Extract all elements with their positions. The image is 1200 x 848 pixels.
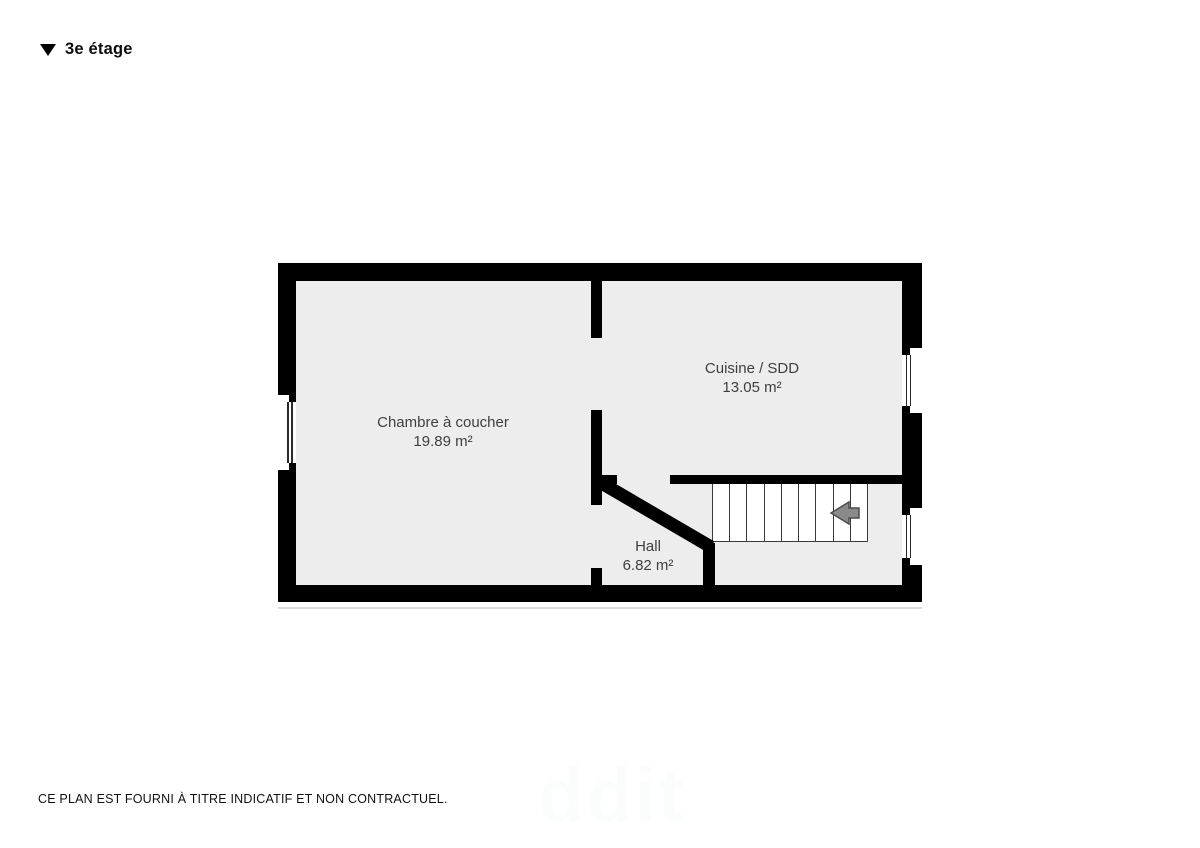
window-left-wall (278, 395, 296, 470)
wall-outer-top (278, 263, 922, 281)
wall-divider-upper (591, 281, 602, 338)
room-area: 13.05 m² (662, 378, 842, 397)
stair-tread (713, 484, 729, 541)
wall-outer-bottom (278, 585, 922, 602)
plan-edge-shadow (278, 607, 922, 609)
window-pane-line (906, 515, 908, 558)
stair-tread (764, 484, 781, 541)
room-label-hall: Hall 6.82 m² (588, 537, 708, 575)
window-pane-line (910, 515, 912, 558)
room-label-chambre: Chambre à coucher 19.89 m² (353, 413, 533, 451)
window-pane-line (287, 402, 289, 463)
stair-tread (815, 484, 832, 541)
room-area: 6.82 m² (588, 556, 708, 575)
window-frame-cap (902, 558, 910, 565)
window-pane-line (906, 355, 908, 406)
room-name: Cuisine / SDD (662, 359, 842, 378)
floor-title: 3e étage (65, 40, 133, 59)
window-pane-line (291, 402, 293, 463)
wall-stub (591, 475, 617, 484)
floorplan-canvas: Chambre à coucher 19.89 m² Cuisine / SDD… (278, 263, 922, 602)
staircase (712, 484, 868, 542)
room-name: Chambre à coucher (353, 413, 533, 432)
stair-tread (781, 484, 798, 541)
triangle-down-icon (40, 44, 56, 56)
disclaimer-text: CE PLAN EST FOURNI À TITRE INDICATIF ET … (38, 792, 448, 806)
floorplan-page: 3e étage (0, 0, 1200, 848)
window-frame-cap (289, 463, 296, 470)
window-pane-line (910, 355, 912, 406)
window-frame-cap (289, 395, 296, 402)
room-label-cuisine: Cuisine / SDD 13.05 m² (662, 359, 842, 397)
window-frame-cap (902, 348, 910, 355)
window-right-wall-upper (902, 348, 922, 413)
window-frame-cap (902, 406, 910, 413)
stair-tread (850, 484, 867, 541)
room-area: 19.89 m² (353, 432, 533, 451)
wall-divider-middle (591, 410, 602, 505)
window-right-wall-lower (902, 508, 922, 565)
room-name: Hall (588, 537, 708, 556)
plan-header: 3e étage (40, 40, 133, 59)
stair-tread (798, 484, 815, 541)
stair-tread (729, 484, 746, 541)
stair-tread (833, 484, 850, 541)
watermark-text: ddit (538, 752, 685, 839)
window-frame-cap (902, 508, 910, 515)
wall-stair-top (670, 475, 902, 484)
stair-tread (746, 484, 763, 541)
